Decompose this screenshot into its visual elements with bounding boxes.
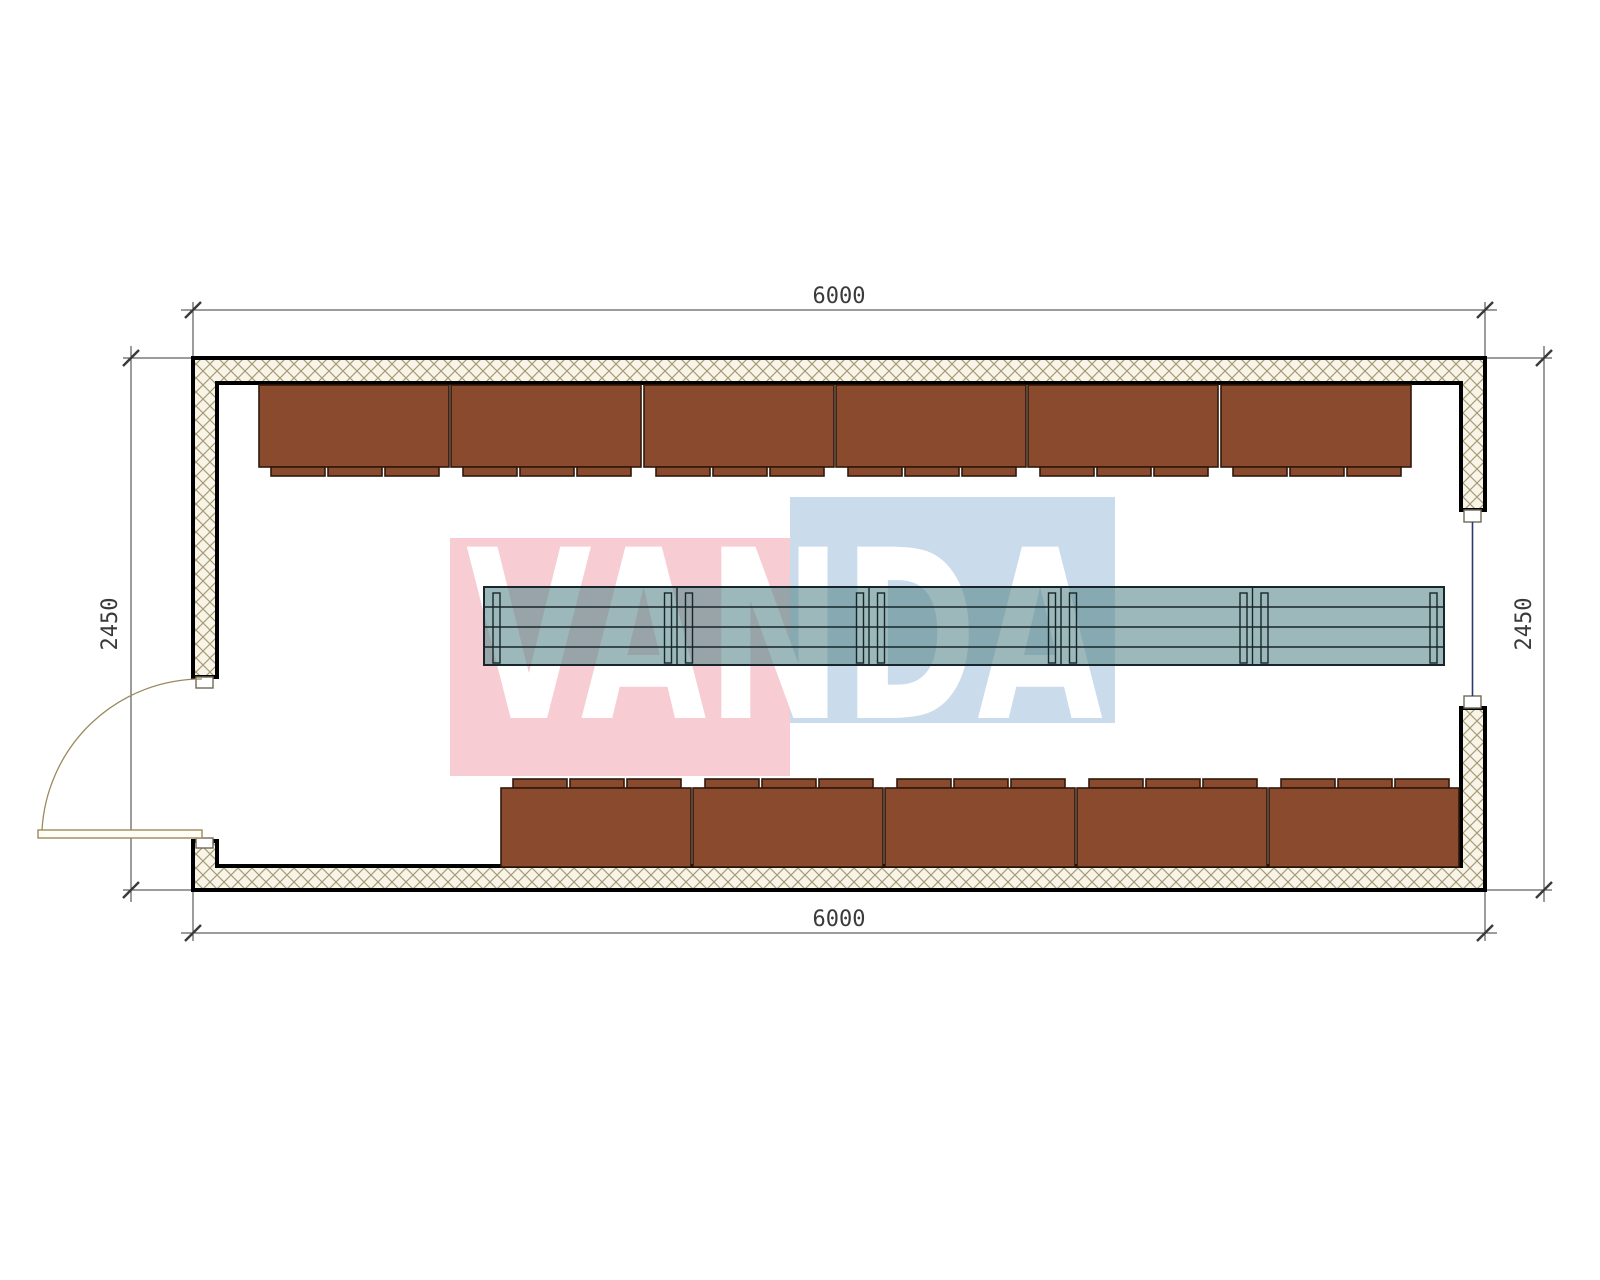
bench-foot	[713, 467, 767, 476]
window-frame-top	[1464, 510, 1481, 522]
bench-seat	[1221, 385, 1411, 467]
bench-foot	[1290, 467, 1344, 476]
bench-foot	[1146, 779, 1200, 788]
bench-foot	[897, 779, 951, 788]
door-frame-bottom	[196, 838, 213, 848]
window-frame-bottom	[1464, 696, 1481, 708]
bench-foot	[1338, 779, 1392, 788]
bench-foot	[705, 779, 759, 788]
bench-foot	[656, 467, 710, 476]
floor-plan-canvas: 6000 6000 2450 2450	[0, 0, 1600, 1280]
bench-seat	[259, 385, 449, 467]
bench-foot	[577, 467, 631, 476]
door-leaf	[38, 830, 202, 838]
bench-foot	[1097, 467, 1151, 476]
bench-row-top	[259, 385, 1411, 476]
dimension-label-right: 2450	[1512, 598, 1537, 651]
center-table	[484, 587, 1444, 665]
door	[38, 677, 213, 848]
door-swing-arc	[42, 679, 202, 830]
bench-foot	[962, 467, 1016, 476]
bench-block	[1028, 385, 1218, 476]
bench-block	[501, 779, 691, 867]
table-top-surface	[484, 587, 1444, 665]
bench-foot	[385, 467, 439, 476]
bench-foot	[954, 779, 1008, 788]
bench-foot	[328, 467, 382, 476]
bench-block	[1269, 779, 1459, 867]
dimension-left: 2450	[98, 346, 193, 902]
bench-foot	[819, 779, 873, 788]
bench-foot	[627, 779, 681, 788]
bench-foot	[848, 467, 902, 476]
dimension-bottom: 6000	[181, 890, 1497, 941]
bench-block	[259, 385, 449, 476]
bench-seat	[885, 788, 1075, 867]
bench-foot	[271, 467, 325, 476]
dimension-label-top: 6000	[813, 284, 866, 309]
bench-foot	[1203, 779, 1257, 788]
window	[1464, 510, 1481, 708]
bench-row-bottom	[501, 779, 1459, 867]
bench-foot	[463, 467, 517, 476]
bench-foot	[762, 779, 816, 788]
bench-foot	[1395, 779, 1449, 788]
bench-block	[1221, 385, 1411, 476]
bench-foot	[1011, 779, 1065, 788]
bench-seat	[1077, 788, 1267, 867]
dimension-label-left: 2450	[98, 598, 123, 651]
bench-seat	[1269, 788, 1459, 867]
bench-foot	[570, 779, 624, 788]
bench-seat	[501, 788, 691, 867]
bench-foot	[1281, 779, 1335, 788]
bench-seat	[836, 385, 1026, 467]
bench-seat	[693, 788, 883, 867]
bench-block	[644, 385, 834, 476]
bench-block	[693, 779, 883, 867]
bench-seat	[1028, 385, 1218, 467]
bench-foot	[770, 467, 824, 476]
bench-block	[1077, 779, 1267, 867]
floor-plan-page: 6000 6000 2450 2450	[0, 0, 1600, 1280]
dimension-top: 6000	[181, 284, 1497, 358]
bench-block	[885, 779, 1075, 867]
bench-foot	[1347, 467, 1401, 476]
bench-foot	[1233, 467, 1287, 476]
bench-block	[836, 385, 1026, 476]
bench-foot	[1040, 467, 1094, 476]
bench-seat	[451, 385, 641, 467]
dimension-label-bottom: 6000	[813, 907, 866, 932]
bench-foot	[1154, 467, 1208, 476]
bench-foot	[1089, 779, 1143, 788]
bench-block	[451, 385, 641, 476]
bench-foot	[513, 779, 567, 788]
bench-seat	[644, 385, 834, 467]
bench-foot	[520, 467, 574, 476]
bench-foot	[905, 467, 959, 476]
dimension-right: 2450	[1485, 346, 1552, 902]
